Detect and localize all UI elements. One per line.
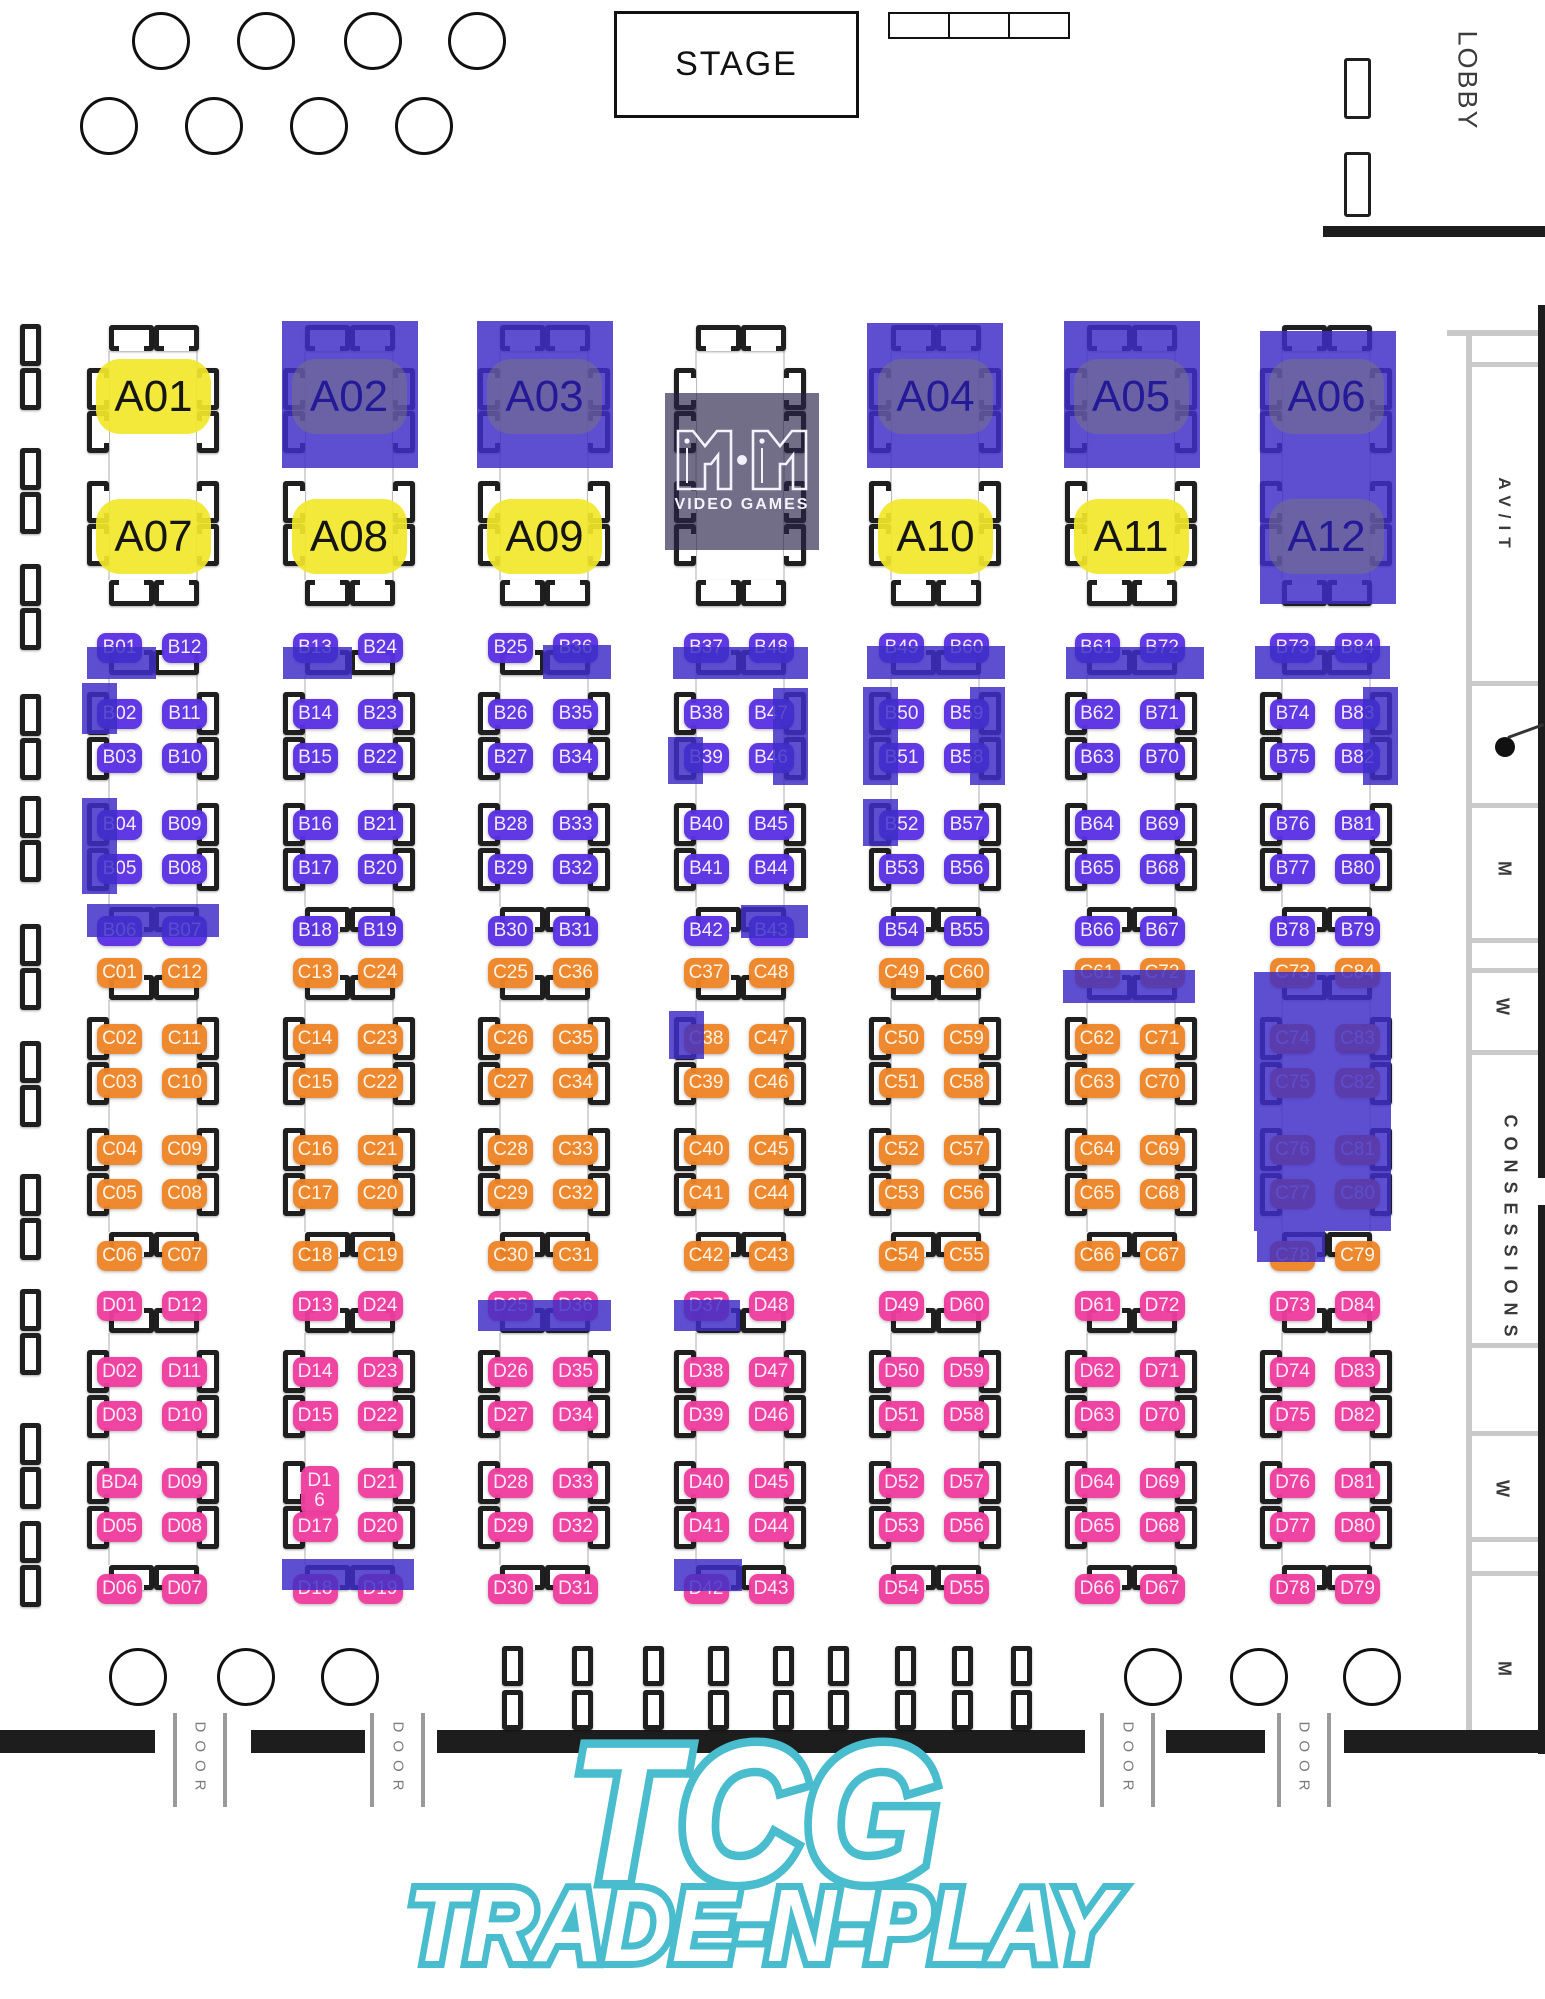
svg-text:TRADE-N-PLAY: TRADE-N-PLAY (408, 1868, 1122, 1983)
svg-text:VIDEO GAMES: VIDEO GAMES (675, 496, 810, 513)
